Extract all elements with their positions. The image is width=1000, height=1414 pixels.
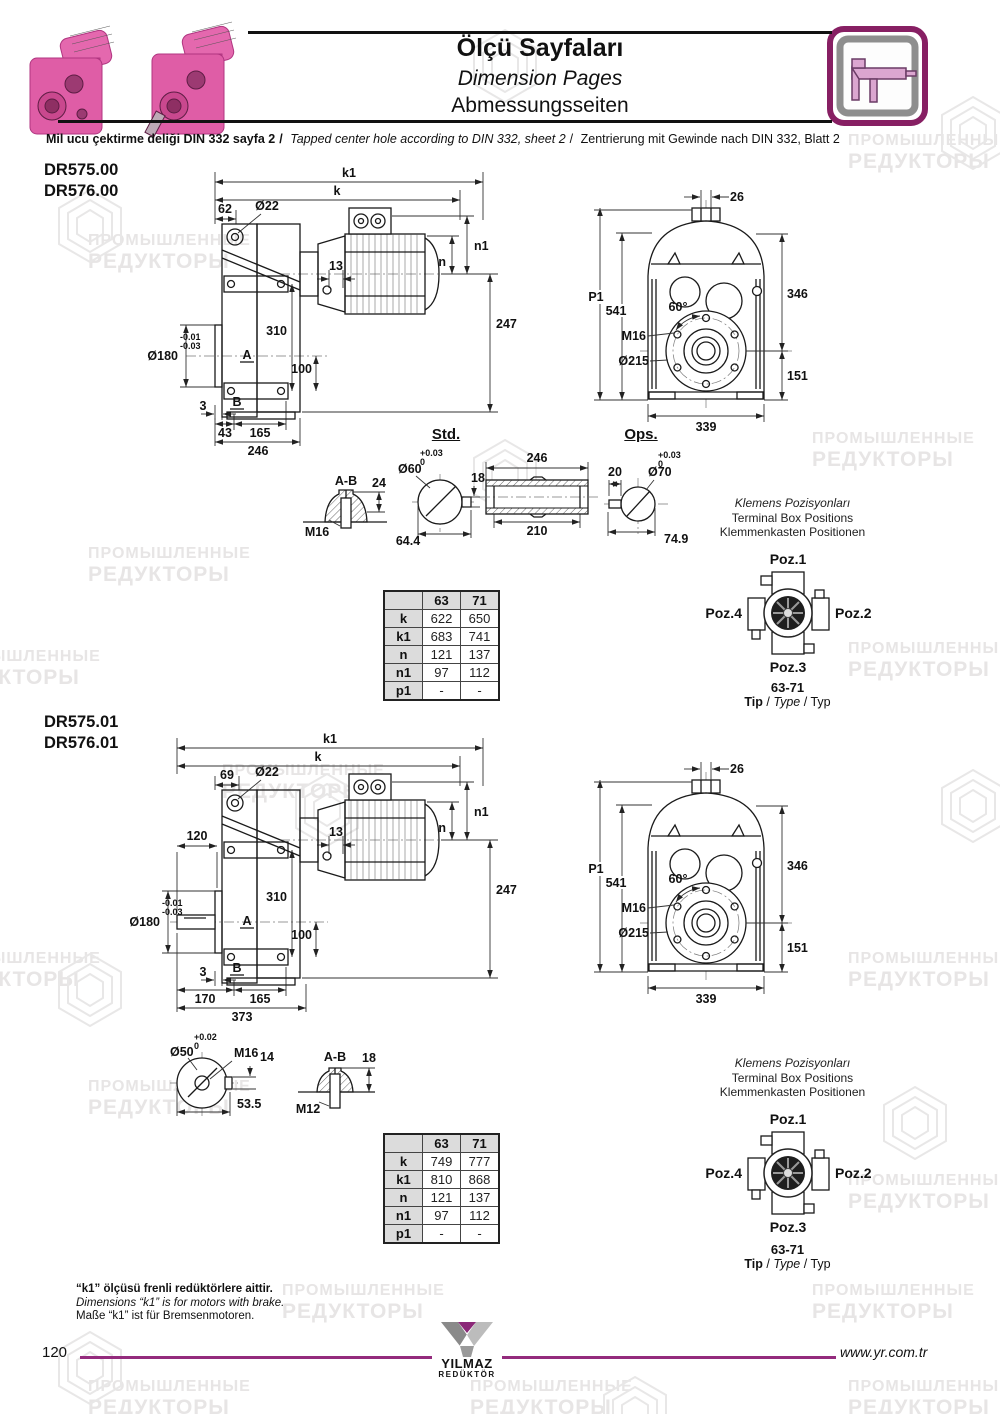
motor-outline: [300, 208, 439, 314]
dim-b1: 43: [218, 426, 232, 440]
front-view-drawing-1: 26 P1 541 346 151 339 60° M16 Ø215: [588, 164, 810, 456]
dimension-table-1: 63 71 k622650 k1683741 n121137 n197112 p…: [383, 590, 500, 701]
row-label: n1: [384, 664, 423, 682]
klemens-turkish: Klemens Pozisyonları: [700, 496, 885, 511]
tip-tr: Tip: [744, 1257, 763, 1271]
footer-rule-right: [502, 1356, 836, 1359]
dim-n: n: [438, 821, 446, 835]
logo-subtext: REDÜKTÖR: [425, 1370, 509, 1379]
terminal-box-positions-heading-2: Klemens Pozisyonları Terminal Box Positi…: [700, 1056, 885, 1100]
watermark-line2: РЕДУКТОРЫ: [88, 563, 251, 587]
ab-title: A-B: [324, 1050, 346, 1064]
gearmotor-photo-1: [30, 26, 114, 134]
shaft-dia: Ø50: [170, 1045, 194, 1059]
cell: 810: [423, 1171, 461, 1189]
dim-n1: n1: [474, 239, 489, 253]
ops-key: 20: [608, 465, 622, 479]
watermark-line2: РЕДУКТОРЫ: [848, 1396, 1000, 1414]
tip-en: Type: [773, 1257, 800, 1271]
sleeve-bore-length: 210: [527, 524, 548, 538]
watermark: ПРОМЫШЛЕННЫЕРЕДУКТОРЫ: [812, 1282, 975, 1323]
model-name: DR575.00: [44, 160, 118, 181]
dim-k: k: [334, 184, 341, 198]
dimension-lines: [162, 738, 498, 1012]
shaft-key: 14: [260, 1050, 274, 1064]
dim-b2: 165: [250, 426, 271, 440]
dim-offset: 69: [220, 768, 234, 782]
motor-outline: [300, 774, 439, 880]
watermark-line2: РЕДУКТОРЫ: [282, 1300, 445, 1324]
din-note-turkish: Mil ucu çektirme deliği DIN 332 sayfa 2: [46, 132, 275, 146]
dim-hole: Ø22: [255, 765, 279, 779]
watermark-line1: ПРОМЫШЛЕННЫЕ: [0, 648, 101, 666]
dim-13: 13: [329, 259, 343, 273]
col-63: 63: [423, 591, 461, 610]
shaft-across: 53.5: [237, 1097, 261, 1111]
dim-b3: 373: [232, 1010, 253, 1024]
mark-b: B: [232, 395, 241, 409]
watermark-line1: ПРОМЫШЛЕННЫЕ: [848, 950, 1000, 968]
watermark-line1: ПРОМЫШЛЕННЫЕ: [848, 1378, 1000, 1396]
cell: -: [423, 1225, 461, 1244]
watermark-line1: ПРОМЫШЛЕННЫЕ: [812, 430, 975, 448]
footnote-turkish: “k1” ölçüsü frenli redüktörlere aittir.: [76, 1283, 284, 1297]
side-view-drawing-2: k1 k 69 Ø22 n1 n 13 247 310 100 120 Ø180…: [130, 728, 560, 1030]
footnote-english: Dimensions “k1” is for motors with brake…: [76, 1297, 284, 1311]
footnote-german: Maße “k1” ist für Bremsenmotoren.: [76, 1310, 284, 1324]
dim-151: 151: [787, 369, 808, 383]
row-label: n: [384, 646, 423, 664]
tip-tr: Tip: [744, 695, 763, 709]
housing-outline: [648, 208, 764, 399]
ab-height: 18: [362, 1051, 376, 1065]
ab-thread: M16: [305, 525, 329, 539]
motor-size-range-1: 63-71: [695, 680, 880, 695]
corner-cell: [384, 591, 423, 610]
watermark: ПРОМЫШЛЕННЫЕРЕДУКТОРЫ: [848, 1378, 1000, 1414]
separator: /: [804, 1257, 807, 1271]
cell: -: [423, 682, 461, 701]
dim-247: 247: [496, 317, 517, 331]
header-rule-top: [248, 31, 832, 34]
tip-de: Typ: [810, 1257, 830, 1271]
ab-thread: M12: [296, 1102, 320, 1116]
center-lines: [170, 840, 444, 922]
dim-p1: P1: [588, 862, 603, 876]
poz-3-label: Poz.3: [770, 1219, 807, 1235]
klemens-turkish: Klemens Pozisyonları: [700, 1056, 885, 1071]
dim-hole: Ø22: [255, 199, 279, 213]
poz-4-label: Poz.4: [705, 1165, 742, 1181]
gearbox-outline: [215, 224, 300, 419]
row-label: k1: [384, 1171, 423, 1189]
std-heading: Std.: [420, 426, 472, 443]
dim-541: 541: [606, 876, 627, 890]
center-lines: [186, 274, 444, 356]
table-row: n197112: [384, 1207, 499, 1225]
dim-100: 100: [291, 928, 312, 942]
page-title-english: Dimension Pages: [260, 67, 820, 91]
dim-bore: Ø180: [147, 349, 178, 363]
tip-en: Type: [773, 695, 800, 709]
footnote: “k1” ölçüsü frenli redüktörlere aittir. …: [76, 1283, 284, 1324]
dim-346: 346: [787, 287, 808, 301]
dim-flange: Ø215: [618, 354, 649, 368]
model-labels-2: DR575.01 DR576.01: [44, 712, 118, 754]
cell: 121: [423, 1189, 461, 1207]
klemens-english: Terminal Box Positions: [700, 1071, 885, 1086]
ops-shaft-detail-1: 20 +0.03 0 Ø70 74.9: [592, 444, 702, 549]
dim-13: 13: [329, 825, 343, 839]
dim-339: 339: [696, 992, 717, 1006]
klemens-german: Klemmenkasten Positionen: [700, 1085, 885, 1100]
shaft-thread: M16: [234, 1046, 258, 1060]
std-dia: Ø60: [398, 462, 422, 476]
motor-size-range-2: 63-71: [695, 1242, 880, 1257]
dim-flange: Ø215: [618, 926, 649, 940]
table-row: n121137: [384, 1189, 499, 1207]
dim-26: 26: [730, 190, 744, 204]
cell: 137: [461, 1189, 500, 1207]
cell: 97: [423, 664, 461, 682]
page-title-block: Ölçü Sayfaları Dimension Pages Abmessung…: [260, 34, 820, 118]
dim-p1: P1: [588, 290, 603, 304]
cell: 137: [461, 646, 500, 664]
dim-n: n: [438, 255, 446, 269]
dim-3: 3: [200, 399, 207, 413]
ops-heading: Ops.: [615, 426, 667, 443]
table-row: n121137: [384, 646, 499, 664]
cell: 112: [461, 1207, 500, 1225]
poz-3-label: Poz.3: [770, 659, 807, 675]
front-view-drawing-2: 26 P1 541 346 151 339 60° M16 Ø215: [588, 736, 810, 1028]
dim-26: 26: [730, 762, 744, 776]
shaft-tol-lo: 0: [194, 1041, 199, 1051]
gearbox-outline: [177, 790, 300, 985]
watermark: ПРОМЫШЛЕННЫЕРЕДУКТОРЫ: [848, 950, 1000, 991]
model-labels-1: DR575.00 DR576.00: [44, 160, 118, 202]
hexagon-watermark-icon: [600, 1375, 670, 1414]
type-caption-2: Tip / Type / Typ: [695, 1257, 880, 1271]
watermark-line2: РЕДУКТОРЫ: [812, 1300, 975, 1324]
watermark: ПРОМЫШЛЕННЫЕРЕДУКТОРЫ: [812, 430, 975, 471]
dim-b2: 165: [250, 992, 271, 1006]
watermark: ПРОМЫШЛЕННЫЕРЕДУКТОРЫ: [282, 1282, 445, 1323]
caliper-icon: [826, 26, 930, 126]
cell: 749: [423, 1153, 461, 1171]
col-71: 71: [461, 1134, 500, 1153]
dimension-table-2: 63 71 k749777 k1810868 n121137 n197112 p…: [383, 1133, 500, 1244]
hexagon-watermark-icon: [880, 1085, 950, 1160]
terminal-box-positions-heading-1: Klemens Pozisyonları Terminal Box Positi…: [700, 496, 885, 540]
dim-n1: n1: [474, 805, 489, 819]
dim-m16: M16: [622, 329, 646, 343]
row-label: k: [384, 1153, 423, 1171]
row-label: p1: [384, 1225, 423, 1244]
dim-541: 541: [606, 304, 627, 318]
mark-a: A: [242, 348, 251, 362]
dim-339: 339: [696, 420, 717, 434]
hexagon-watermark-icon: [938, 95, 1000, 170]
din-note: Mil ucu çektirme deliği DIN 332 sayfa 2/…: [46, 132, 844, 146]
dim-offset: 62: [218, 202, 232, 216]
std-across: 64.4: [396, 534, 420, 548]
dim-310: 310: [266, 890, 287, 904]
row-label: n1: [384, 1207, 423, 1225]
hexagon-watermark-icon: [938, 768, 1000, 843]
cell: 97: [423, 1207, 461, 1225]
terminal-box-position-diagram-2: Poz.1 Poz.2 Poz.3 Poz.4: [695, 1108, 880, 1238]
sleeve-length: 246: [527, 451, 548, 465]
terminal-box-position-diagram-1: Poz.1 Poz.2 Poz.3 Poz.4: [695, 548, 880, 678]
watermark-line2: РЕДУКТОРЫ: [0, 666, 101, 690]
table-row: n197112: [384, 664, 499, 682]
table-row: p1--: [384, 1225, 499, 1244]
logo-wordmark: YILMAZ: [425, 1356, 509, 1371]
model-name: DR576.00: [44, 181, 118, 202]
dim-120: 120: [187, 829, 208, 843]
separator: /: [766, 1257, 769, 1271]
poz-2-label: Poz.2: [835, 605, 872, 621]
housing-outline: [648, 780, 764, 971]
separator: /: [766, 695, 769, 709]
separator: /: [279, 132, 282, 146]
yilmaz-logo-icon: [436, 1320, 498, 1358]
table-row: p1--: [384, 682, 499, 701]
cell: 121: [423, 646, 461, 664]
dim-b1: 170: [195, 992, 216, 1006]
dim-151: 151: [787, 941, 808, 955]
ops-across: 74.9: [664, 532, 688, 546]
corner-cell: [384, 1134, 423, 1153]
dim-b3: 246: [248, 444, 269, 458]
col-63: 63: [423, 1134, 461, 1153]
watermark-line1: ПРОМЫШЛЕННЫЕ: [282, 1282, 445, 1300]
ab-height: 24: [372, 476, 386, 490]
cell: 650: [461, 610, 500, 628]
watermark: ПРОМЫШЛЕННЫЕРЕДУКТОРЫ: [88, 545, 251, 586]
dim-bore: Ø180: [130, 915, 160, 929]
row-label: k1: [384, 628, 423, 646]
table-row: k622650: [384, 610, 499, 628]
dim-3: 3: [200, 965, 207, 979]
dim-k: k: [315, 750, 322, 764]
table-row: k749777: [384, 1153, 499, 1171]
dim-angle: 60°: [669, 872, 688, 886]
side-view-drawing-1: k1 k 62 Ø22 n1 n 13 247 310 100 Ø180 -0.…: [130, 162, 560, 464]
cell: 868: [461, 1171, 500, 1189]
mark-a: A: [242, 914, 251, 928]
poz-4-label: Poz.4: [705, 605, 742, 621]
website-link[interactable]: www.yr.com.tr: [840, 1344, 927, 1360]
poz-2-label: Poz.2: [835, 1165, 872, 1181]
product-photos: [22, 6, 272, 144]
bore-tol-lo: -0.03: [162, 907, 183, 917]
page-title-german: Abmessungsseiten: [260, 94, 820, 118]
dim-310: 310: [266, 324, 287, 338]
row-label: k: [384, 610, 423, 628]
klemens-english: Terminal Box Positions: [700, 511, 885, 526]
ops-dia: Ø70: [648, 465, 672, 479]
cell: -: [461, 682, 500, 701]
ab-section-detail-2: A-B 18 M12: [293, 1040, 408, 1120]
col-71: 71: [461, 591, 500, 610]
dim-k1: k1: [342, 166, 356, 180]
poz-1-label: Poz.1: [770, 551, 807, 567]
table-row: k1810868: [384, 1171, 499, 1189]
tip-de: Typ: [810, 695, 830, 709]
cell: -: [461, 1225, 500, 1244]
ab-title: A-B: [335, 474, 357, 488]
watermark: ПРОМЫШЛЕННЫЕРЕДУКТОРЫ: [0, 648, 101, 689]
watermark-line1: ПРОМЫШЛЕННЫЕ: [812, 1282, 975, 1300]
side-dim-labels: k1 k 69 Ø22 n1 n 13 247 310 100 120 Ø180…: [130, 732, 517, 1024]
table-row: k1683741: [384, 628, 499, 646]
cell: 112: [461, 664, 500, 682]
bore-tol-lo: -0.03: [180, 341, 201, 351]
watermark-line1: ПРОМЫШЛЕННЫЕ: [88, 545, 251, 563]
footer-rule-left: [80, 1356, 432, 1359]
cell: 741: [461, 628, 500, 646]
dim-247: 247: [496, 883, 517, 897]
separator: /: [570, 132, 573, 146]
dim-346: 346: [787, 859, 808, 873]
row-label: n: [384, 1189, 423, 1207]
header-rule-bottom: [58, 120, 832, 123]
hexagon-watermark-icon: [55, 952, 125, 1027]
hexagon-watermark-icon: [55, 1330, 125, 1405]
din-note-english: Tapped center hole according to DIN 332,…: [290, 132, 565, 146]
watermark-line2: РЕДУКТОРЫ: [848, 968, 1000, 992]
catalog-page: ПРОМЫШЛЕННЫЕРЕДУКТОРЫ ПРОМЫШЛЕННЫЕРЕДУКТ…: [0, 0, 1000, 1414]
model-name: DR575.01: [44, 712, 118, 733]
mark-b: B: [232, 961, 241, 975]
cell: 683: [423, 628, 461, 646]
page-number: 120: [42, 1344, 67, 1361]
dim-100: 100: [291, 362, 312, 376]
poz-1-label: Poz.1: [770, 1111, 807, 1127]
separator: /: [804, 695, 807, 709]
watermark-line2: РЕДУКТОРЫ: [812, 448, 975, 472]
solid-shaft-detail-2: +0.02 0 Ø50 M16 14 53.5: [152, 1028, 302, 1123]
model-name: DR576.01: [44, 733, 118, 754]
dim-angle: 60°: [669, 300, 688, 314]
klemens-german: Klemmenkasten Positionen: [700, 525, 885, 540]
hollow-shaft-sleeve-detail: 246 210: [478, 450, 600, 538]
type-caption-1: Tip / Type / Typ: [695, 695, 880, 709]
cell: 622: [423, 610, 461, 628]
dim-m16: M16: [622, 901, 646, 915]
row-label: p1: [384, 682, 423, 701]
page-title-turkish: Ölçü Sayfaları: [260, 34, 820, 63]
cell: 777: [461, 1153, 500, 1171]
din-note-german: Zentrierung mit Gewinde nach DIN 332, Bl…: [581, 132, 840, 146]
ab-section-detail-1: A-B 24 M16: [295, 448, 400, 543]
dim-k1: k1: [323, 732, 337, 746]
